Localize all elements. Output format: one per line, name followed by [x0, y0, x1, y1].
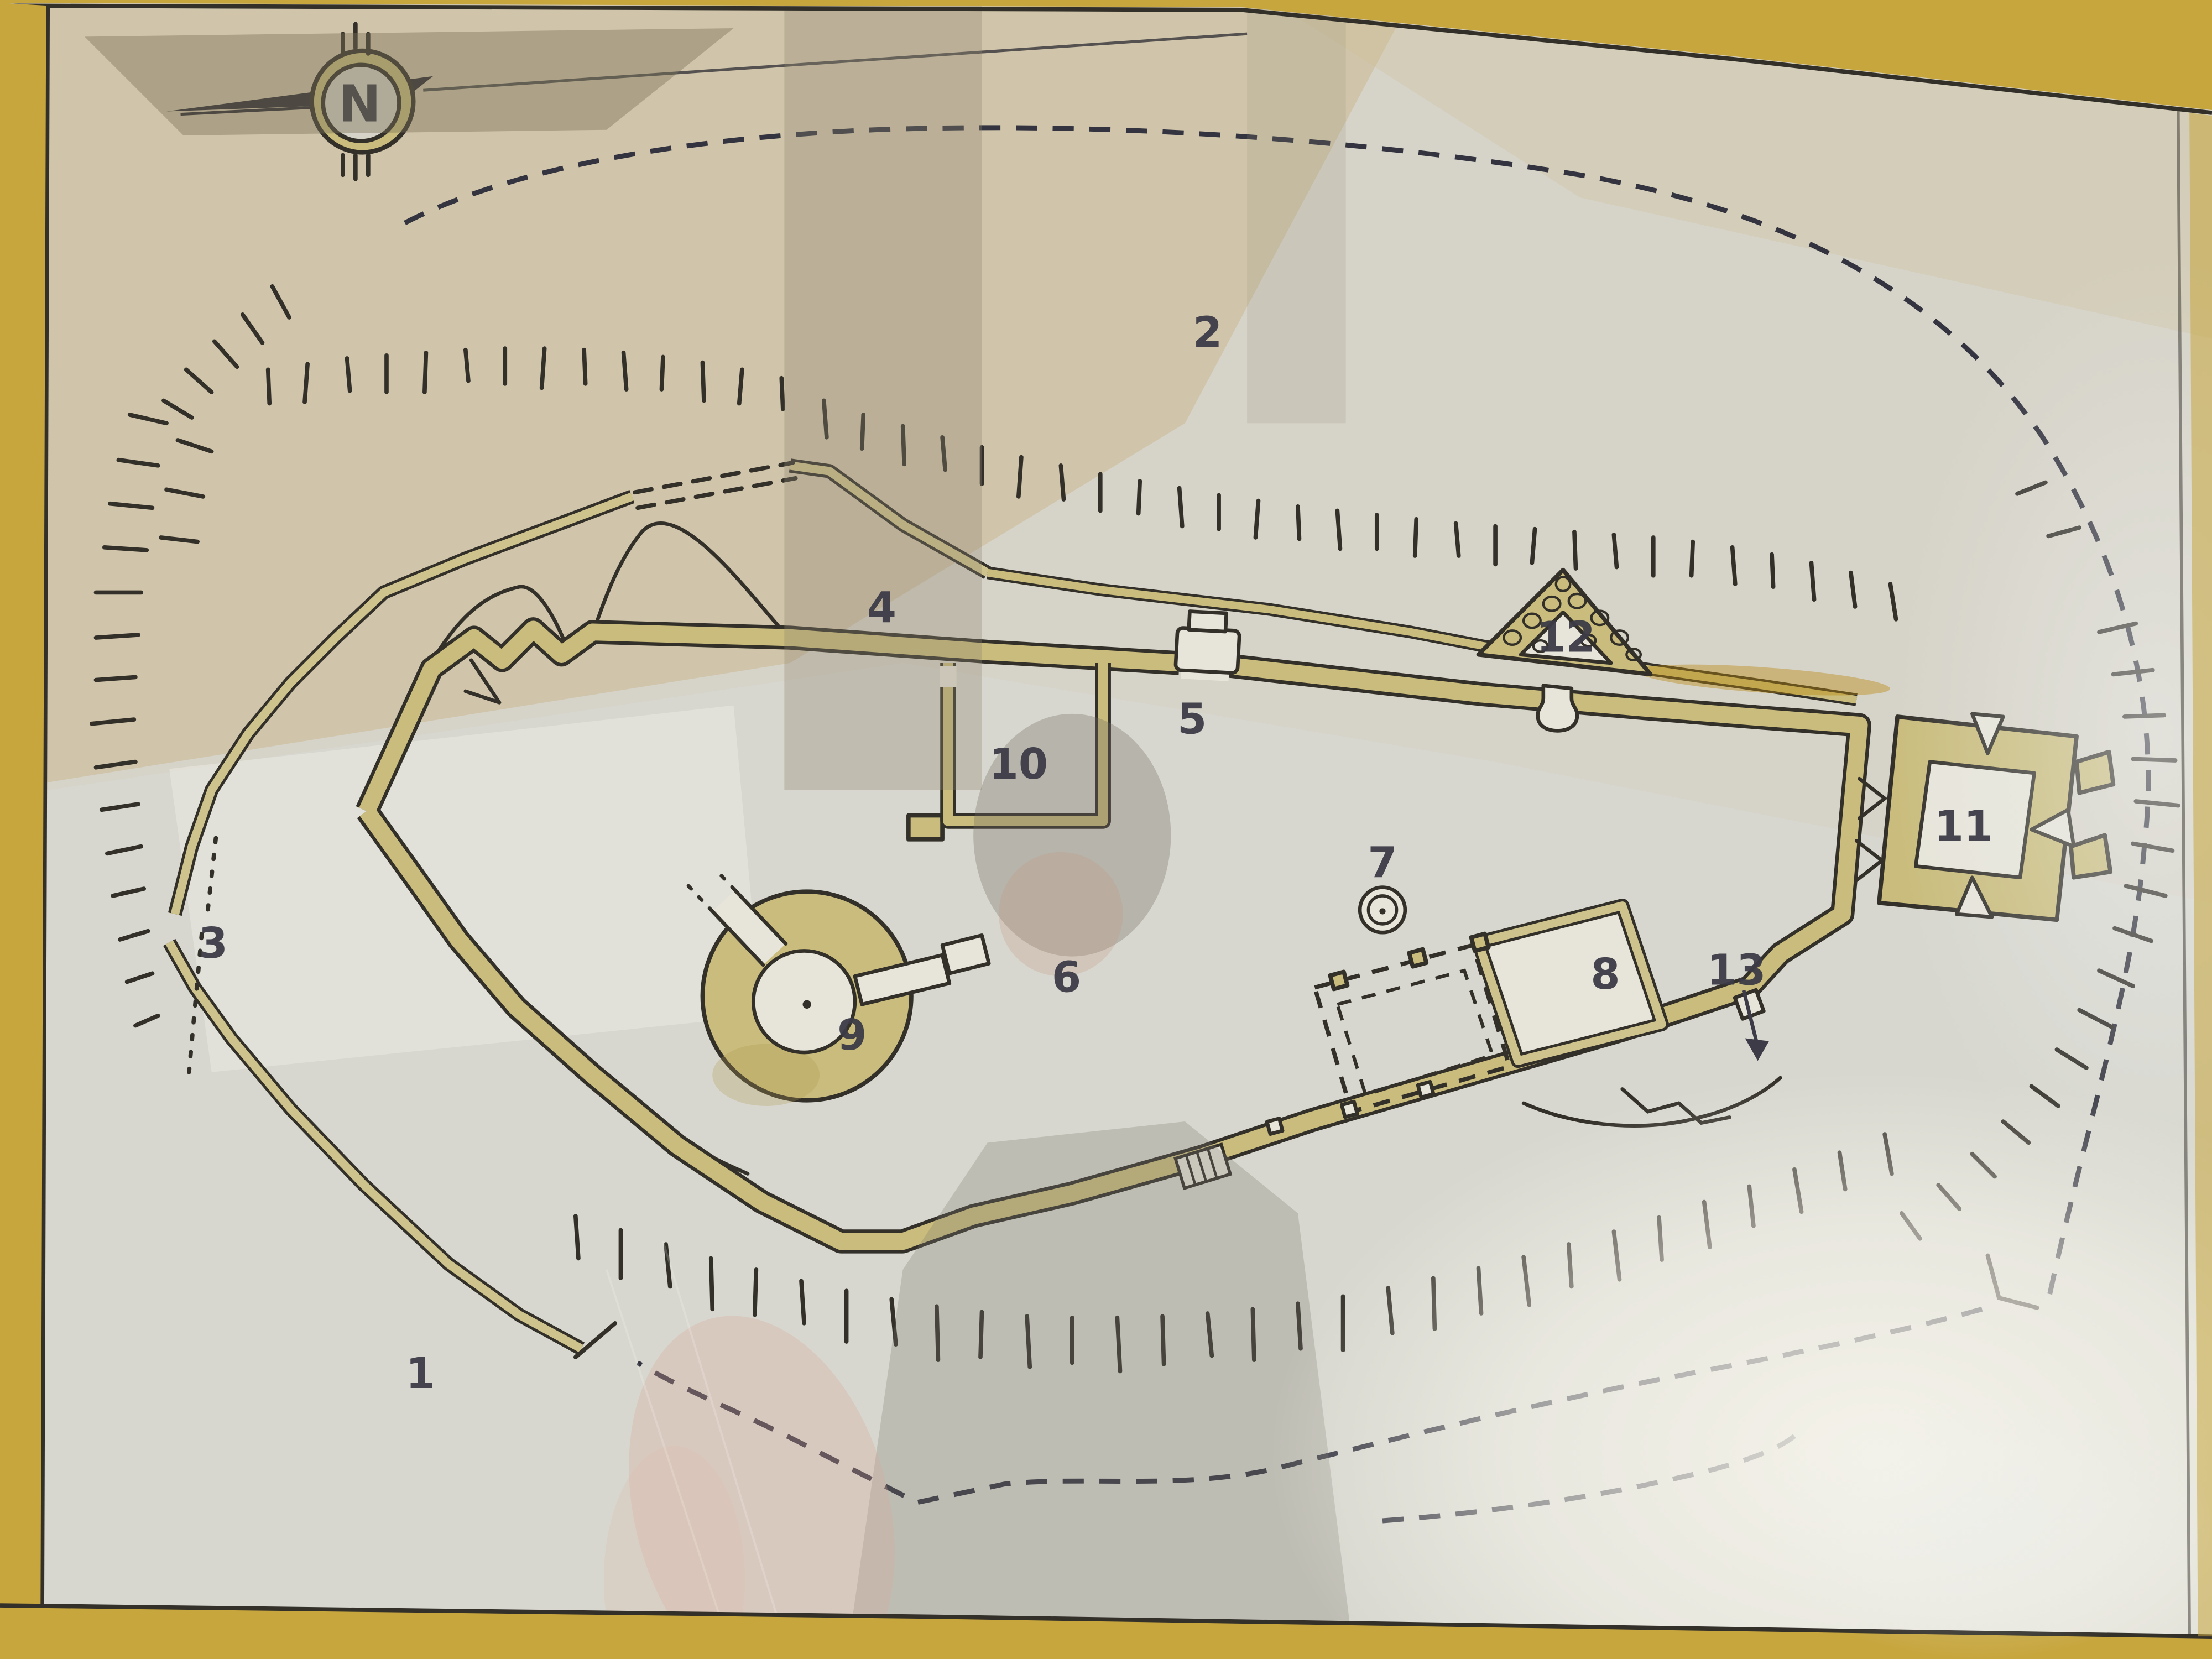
marker-1-label: 1: [406, 1349, 435, 1399]
marker-9-label: 9: [837, 1011, 867, 1060]
frame-left: [0, 3, 48, 1623]
marker-11-label: 11: [1934, 802, 1993, 851]
marker-4-label: 4: [867, 583, 896, 633]
marker-7-label: 7: [1368, 839, 1397, 888]
info-board-photo: N 1 2 3 4 5 6 7 8 9 10 11 12 13: [0, 0, 2212, 1659]
marker-12-label: 12: [1536, 613, 1595, 662]
marker-6-label: 6: [1052, 953, 1081, 1002]
marker-8-label: 8: [1590, 950, 1620, 999]
frame-glare-wash: [1749, 1390, 2212, 1659]
gate-5-porch-top: [1189, 611, 1227, 632]
bastion-arched-gate: [1538, 686, 1577, 731]
marker-2-label: 2: [1193, 309, 1222, 358]
marker-5-label: 5: [1177, 695, 1207, 744]
castle-plan-svg: N 1 2 3 4 5 6 7 8 9 10 11 12 13: [0, 0, 2212, 1659]
well-7: [1360, 888, 1405, 933]
reflection-tree-trunk: [784, 0, 982, 790]
gate-5-porch: [1175, 628, 1239, 673]
reflection-tree-trunk-2: [1247, 0, 1346, 423]
marker-10-label: 10: [989, 740, 1048, 789]
marker-3-label: 3: [199, 919, 228, 968]
reflection-bright-left: [169, 706, 761, 1072]
marker-13-label: 13: [1707, 946, 1766, 995]
tower-9-center-dot: [803, 1000, 811, 1009]
well-7-dot: [1379, 908, 1385, 914]
room-10-foot: [909, 815, 942, 839]
